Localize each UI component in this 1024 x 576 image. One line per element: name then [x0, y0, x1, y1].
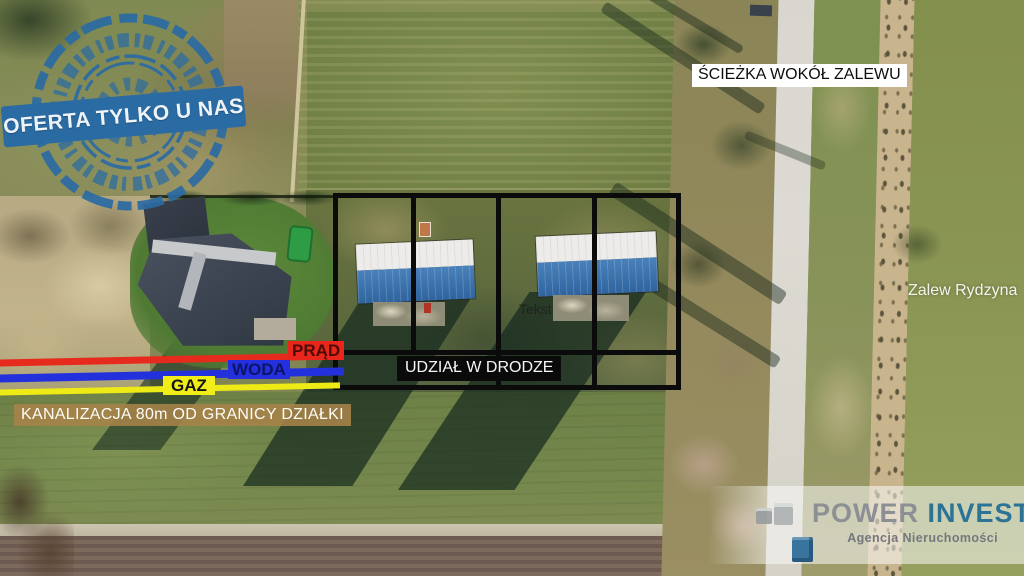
road-share-label: UDZIAŁ W DRODZE — [397, 356, 561, 381]
roof-south-slope — [357, 265, 475, 303]
aerial-listing-photo: PRĄD WODA GAZ ŚCIEŻKA WOKÓŁ ZALEWU Zalew… — [0, 0, 1024, 576]
electricity-label: PRĄD — [288, 341, 344, 360]
placeholder-text-label: Tekst — [519, 301, 552, 317]
path-around-lagoon-label: ŚCIEŻKA WOKÓŁ ZALEWU — [692, 64, 907, 87]
garden-trampoline — [286, 225, 314, 263]
road-strip-divider — [333, 350, 681, 355]
plowed-field — [0, 536, 700, 576]
agency-logo: POWER INVEST — [812, 498, 1024, 529]
plot-boundary-left — [333, 193, 338, 390]
path-bench — [750, 5, 772, 17]
house-1-terrace — [373, 302, 445, 326]
exclusive-offer-stamp: OFERTA TYLKO U NAS — [0, 2, 260, 222]
sewage-distance-label: KANALIZACJA 80m OD GRANICY DZIAŁKI — [14, 404, 351, 426]
lagoon-name-label: Zalew Rydzyna — [908, 282, 1017, 300]
house-2-terrace — [553, 295, 629, 321]
logo-cube-icon — [774, 503, 793, 525]
plot-boundary-top — [333, 193, 681, 198]
brand-name-primary: POWER — [812, 498, 919, 528]
logo-cube-icon — [756, 508, 772, 524]
gas-label: GAZ — [163, 376, 215, 395]
plot-boundary-bottom — [334, 385, 681, 390]
plot-divider-3 — [592, 193, 597, 390]
neighbour-terrace — [254, 318, 296, 340]
terrace-object — [424, 303, 431, 313]
agency-subtitle: Agencja Nieruchomości — [806, 531, 998, 545]
rooftop-object — [419, 222, 431, 237]
plot-divider-1 — [411, 193, 416, 354]
brand-name-secondary: INVEST — [928, 498, 1024, 528]
offered-house-2 — [535, 230, 660, 297]
dark-brush-corner — [0, 462, 74, 576]
plot-boundary-right — [676, 193, 681, 390]
roof-south-slope — [537, 258, 658, 297]
water-label: WODA — [228, 360, 290, 379]
